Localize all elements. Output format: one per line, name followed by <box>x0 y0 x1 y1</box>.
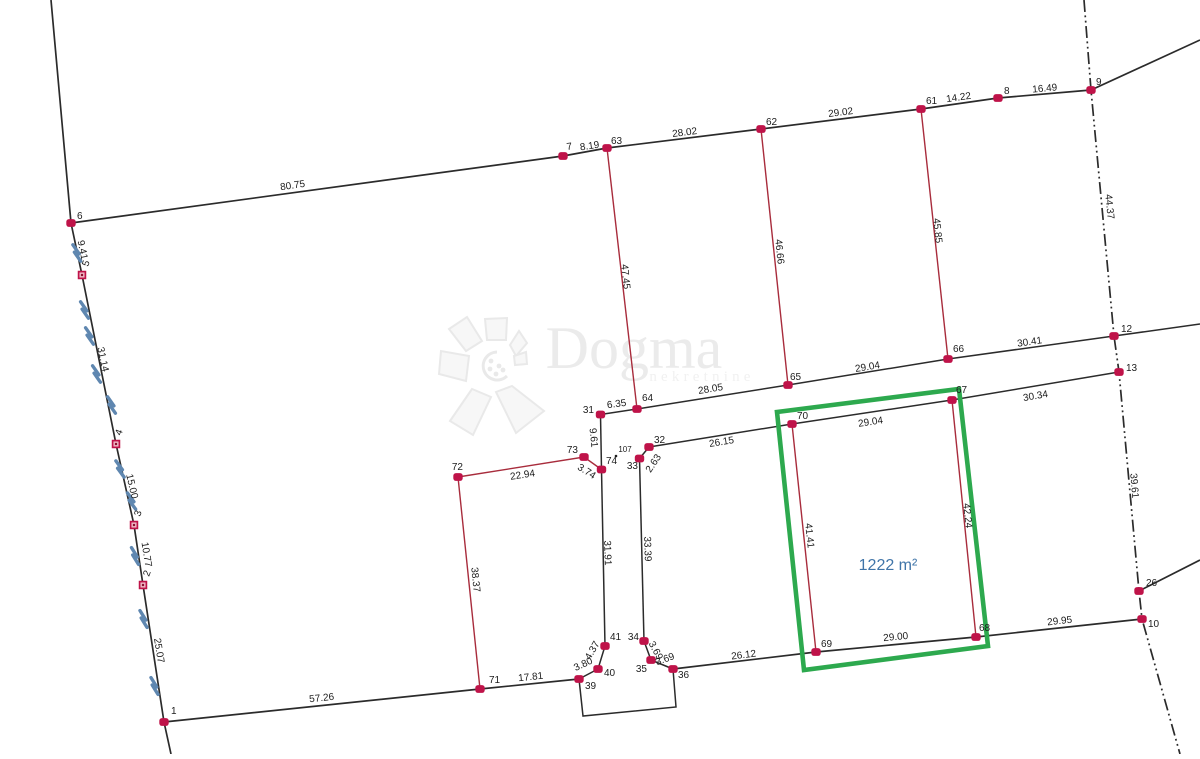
svg-text:1222 m²: 1222 m² <box>859 557 918 574</box>
svg-text:nekretnine: nekretnine <box>649 369 754 385</box>
svg-text:65: 65 <box>790 372 802 383</box>
svg-text:16.49: 16.49 <box>1032 82 1058 95</box>
svg-text:68: 68 <box>979 623 991 634</box>
svg-text:40: 40 <box>604 668 616 679</box>
svg-text:41: 41 <box>610 632 622 643</box>
svg-text:39.61: 39.61 <box>1127 473 1140 499</box>
svg-text:64: 64 <box>642 393 654 404</box>
svg-text:67: 67 <box>956 385 968 396</box>
svg-text:66: 66 <box>953 344 965 355</box>
svg-text:12: 12 <box>1121 324 1133 335</box>
svg-text:10: 10 <box>1148 619 1160 630</box>
svg-text:31: 31 <box>583 405 595 416</box>
svg-text:71: 71 <box>489 675 501 686</box>
svg-text:36: 36 <box>678 670 690 681</box>
svg-text:63: 63 <box>611 136 623 147</box>
svg-text:9.61: 9.61 <box>586 427 599 448</box>
svg-text:74: 74 <box>606 456 618 467</box>
svg-text:107: 107 <box>618 445 632 454</box>
svg-text:33: 33 <box>627 461 639 472</box>
svg-text:32: 32 <box>654 435 666 446</box>
svg-text:8: 8 <box>1004 86 1010 97</box>
svg-text:1: 1 <box>171 706 177 717</box>
svg-text:35: 35 <box>636 664 648 675</box>
svg-text:72: 72 <box>452 462 464 473</box>
svg-text:62: 62 <box>766 117 778 128</box>
svg-text:13: 13 <box>1126 363 1138 374</box>
svg-text:31.91: 31.91 <box>601 540 613 566</box>
svg-text:69: 69 <box>821 639 833 650</box>
svg-text:34: 34 <box>628 632 640 643</box>
svg-text:61: 61 <box>926 96 938 107</box>
svg-text:73: 73 <box>567 445 579 456</box>
svg-text:70: 70 <box>797 411 809 422</box>
svg-text:39: 39 <box>585 681 597 692</box>
svg-text:26: 26 <box>1146 578 1158 589</box>
svg-text:9: 9 <box>1096 77 1102 88</box>
svg-text:6: 6 <box>77 211 83 222</box>
svg-text:33.39: 33.39 <box>641 536 653 562</box>
